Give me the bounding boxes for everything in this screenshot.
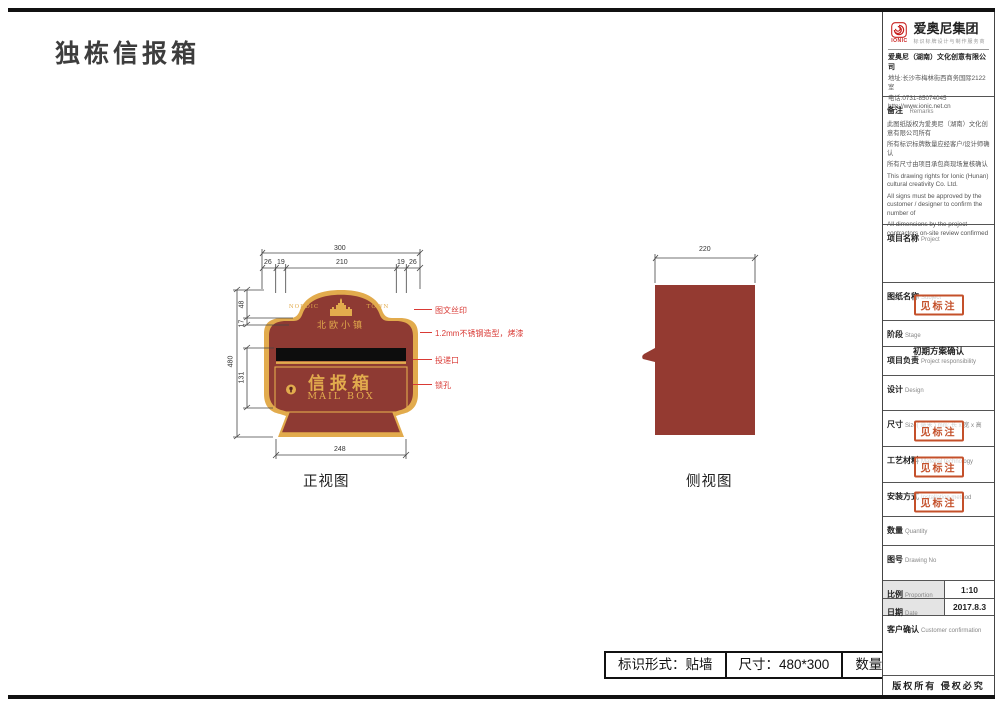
remark-item: This drawing rights for Ionic (Hunan) cu… [887, 173, 990, 190]
field-responsibility: 项目负责Project responsibility [883, 347, 994, 376]
field-customer-confirmation: 客户确认Customer confirmation [883, 616, 994, 676]
field-label-zh: 阶段 [887, 330, 903, 339]
field-label-zh: 比例 [887, 590, 903, 599]
company-block: IONIC 爱奥尼集团 标识标牌设计与制作服务商 爱奥尼（湖南）文化创意有限公司… [883, 12, 994, 97]
field-label-zh: 客户确认 [887, 625, 919, 634]
mail-slot [276, 348, 406, 361]
front-view-drawing [215, 245, 565, 475]
dim-w3: 210 [336, 259, 348, 266]
mailbox-subtitle: MAIL BOX [271, 391, 411, 402]
field-label-en: Customer confirmation [921, 628, 981, 634]
remark-item: 所有标识标牌数量应经客户/设计师确认 [887, 141, 990, 158]
dim-h3: 131 [238, 372, 245, 384]
sheet-top-border [8, 8, 995, 12]
field-label-zh: 设计 [887, 385, 903, 394]
field-project: 项目名称Project [883, 225, 994, 283]
side-flap [642, 348, 655, 362]
dim-w1: 26 [264, 259, 272, 266]
company-tagline: 标识标牌设计与制作服务商 [913, 38, 985, 45]
copyright-notice: 版权所有 侵权必究 [883, 676, 994, 695]
dim-side-depth: 220 [699, 246, 711, 253]
proportion-value: 1:10 [945, 581, 994, 598]
dim-w4: 19 [397, 259, 405, 266]
row-date: 日期Date 2017.8.3 [883, 599, 994, 616]
field-label-en: Project [921, 237, 940, 243]
dim-h2: 17 [238, 320, 245, 328]
field-label-zh: 数量 [887, 526, 903, 535]
field-label-en: Design [905, 388, 924, 394]
field-size: 尺寸Size( 毫米 ) mm; 长 x 宽 x 高 见标注 [883, 411, 994, 447]
dim-w5: 26 [409, 259, 417, 266]
field-label-en: Stage [905, 333, 921, 339]
remarks-label-en: Remarks [909, 109, 933, 115]
side-view-drawing [640, 250, 780, 450]
side-view-label: 侧视图 [686, 470, 733, 491]
spec-form: 标识形式：贴墙 [604, 651, 727, 679]
mailbox-estate-name-left: NORDIC [282, 304, 326, 310]
field-label-en: Drawing No [905, 558, 936, 564]
annotation-material: 1.2mm不锈钢造型，烤漆 [435, 328, 523, 339]
dim-height-total: 480 [227, 356, 234, 368]
ionic-logo-icon [891, 22, 907, 38]
dim-h1: 48 [238, 301, 245, 309]
annotation-keyhole: 锁孔 [435, 380, 451, 391]
see-note-stamp: 见标注 [914, 421, 964, 442]
field-drawing-no: 图号Drawing No [883, 546, 994, 581]
annotation-slot: 投递口 [435, 355, 459, 366]
field-label-en: Quantity [905, 529, 927, 535]
field-design: 设计Design [883, 376, 994, 411]
page-title: 独栋信报箱 [55, 34, 200, 70]
dim-width-total: 300 [334, 245, 346, 252]
field-label-en: Project responsibility [921, 359, 976, 365]
see-note-stamp: 见标注 [914, 491, 964, 512]
see-note-stamp: 见标注 [914, 294, 964, 315]
mailbox-side-shape [655, 285, 755, 435]
title-block: IONIC 爱奥尼集团 标识标牌设计与制作服务商 爱奥尼（湖南）文化创意有限公司… [882, 12, 995, 695]
sheet-bottom-border [8, 695, 995, 699]
field-subject: 图纸名称Subject 见标注 [883, 283, 994, 322]
row-proportion: 比例Proportion 1:10 [883, 581, 994, 599]
side-dimension-lines [653, 254, 758, 283]
field-label-zh: 图号 [887, 555, 903, 564]
remarks-label-zh: 备注 [887, 106, 903, 115]
field-quantity: 数量Quantity [883, 517, 994, 547]
dim-w2: 19 [277, 259, 285, 266]
mailbox-estate-name-right: TOWN [356, 304, 400, 310]
date-value: 2017.8.3 [945, 599, 994, 615]
field-material: 工艺材料Material technology 见标注 [883, 447, 994, 483]
company-group-name: 爱奥尼集团 [913, 18, 987, 37]
field-stage: 阶段Stage 初期方案确认 [883, 321, 994, 347]
remark-item: 此图纸版权为爱奥尼（湖南）文化创意有限公司所有 [887, 121, 990, 138]
remark-item: 所有尺寸由项目承包商现场复核确认 [887, 161, 990, 170]
remark-item: All signs must be approved by the custom… [887, 193, 990, 219]
front-view-label: 正视图 [303, 470, 350, 491]
field-label-zh: 项目负责 [887, 356, 919, 365]
remarks-section: 备注 Remarks 此图纸版权为爱奥尼（湖南）文化创意有限公司所有 所有标识标… [883, 97, 994, 225]
company-address: 地址:长沙市梅林街西商务国际2122室 [888, 73, 989, 91]
field-installation: 安装方式Installation method 见标注 [883, 483, 994, 517]
annotation-silkprint: 图文丝印 [435, 305, 467, 316]
field-label-zh: 尺寸 [887, 420, 903, 429]
dim-base-width: 248 [334, 446, 346, 453]
mailbox-estate-name: 北欧小镇 [291, 318, 391, 331]
mailbox-front-shape [264, 290, 418, 437]
see-note-stamp: 见标注 [914, 457, 964, 478]
company-full-name: 爱奥尼（湖南）文化创意有限公司 [888, 52, 989, 72]
spec-size: 尺寸：480*300 [725, 651, 844, 679]
field-label-zh: 项目名称 [887, 234, 919, 243]
logo-text: IONIC [891, 38, 907, 44]
